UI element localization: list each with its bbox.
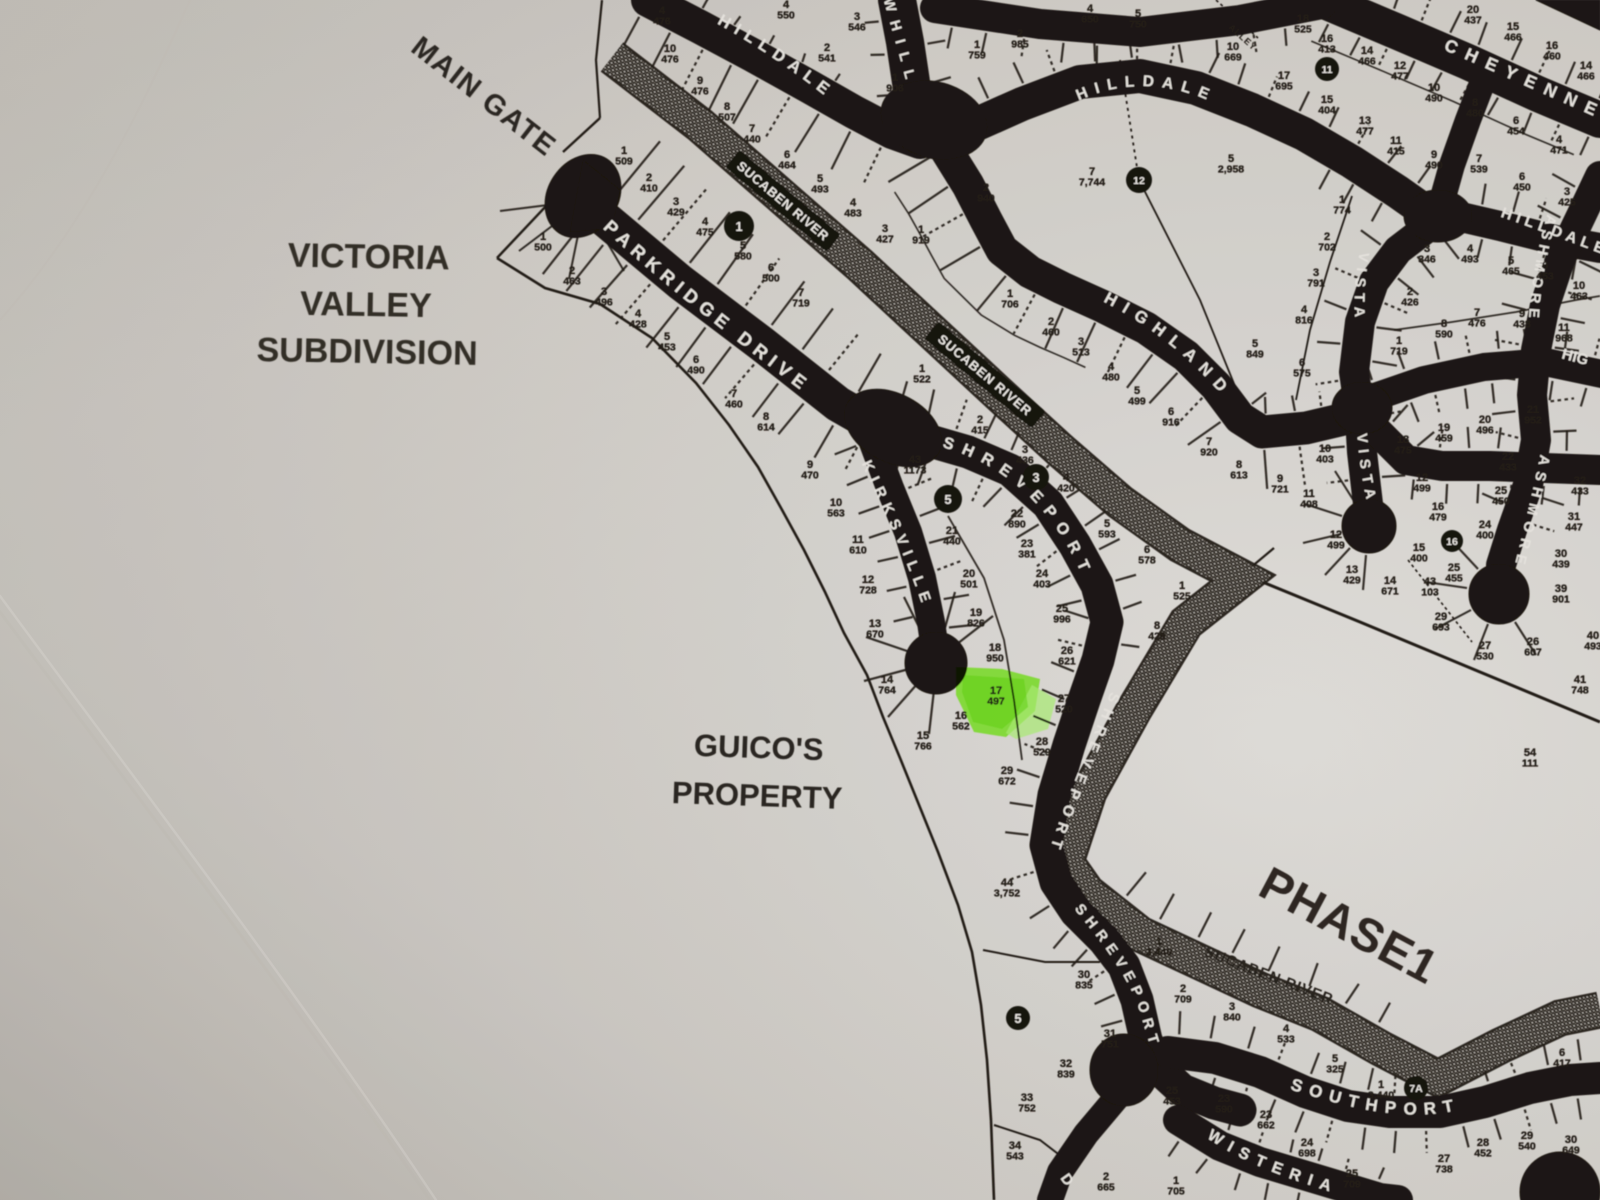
svg-text:VICTORIA: VICTORIA bbox=[288, 237, 450, 278]
svg-text:VALLEY: VALLEY bbox=[300, 285, 433, 325]
svg-text:12: 12 bbox=[1133, 175, 1145, 187]
svg-text:PROPERTY: PROPERTY bbox=[671, 775, 843, 816]
svg-text:16: 16 bbox=[1446, 536, 1458, 548]
svg-text:54111: 54111 bbox=[1522, 747, 1539, 770]
svg-text:GUICO'S: GUICO'S bbox=[693, 728, 824, 768]
svg-text:5: 5 bbox=[944, 492, 951, 507]
svg-text:7A: 7A bbox=[1409, 1083, 1423, 1095]
svg-text:3: 3 bbox=[1032, 470, 1039, 485]
svg-text:5: 5 bbox=[1014, 1011, 1021, 1026]
svg-text:SUBDIVISION: SUBDIVISION bbox=[256, 331, 478, 373]
svg-text:1: 1 bbox=[735, 219, 742, 234]
svg-text:40493: 40493 bbox=[1584, 630, 1600, 653]
svg-text:11: 11 bbox=[1321, 64, 1332, 76]
